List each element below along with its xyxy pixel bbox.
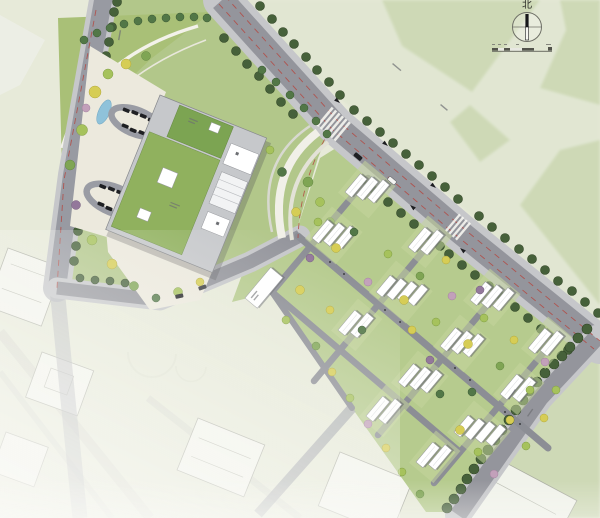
site-plan-rendering: 北 [0,0,600,518]
north-label: 北 [522,0,532,11]
site-plan-canvas: 北 [0,0,600,518]
fade-overlay-southwest [0,230,400,518]
fade-overlay-bottom [0,480,600,518]
